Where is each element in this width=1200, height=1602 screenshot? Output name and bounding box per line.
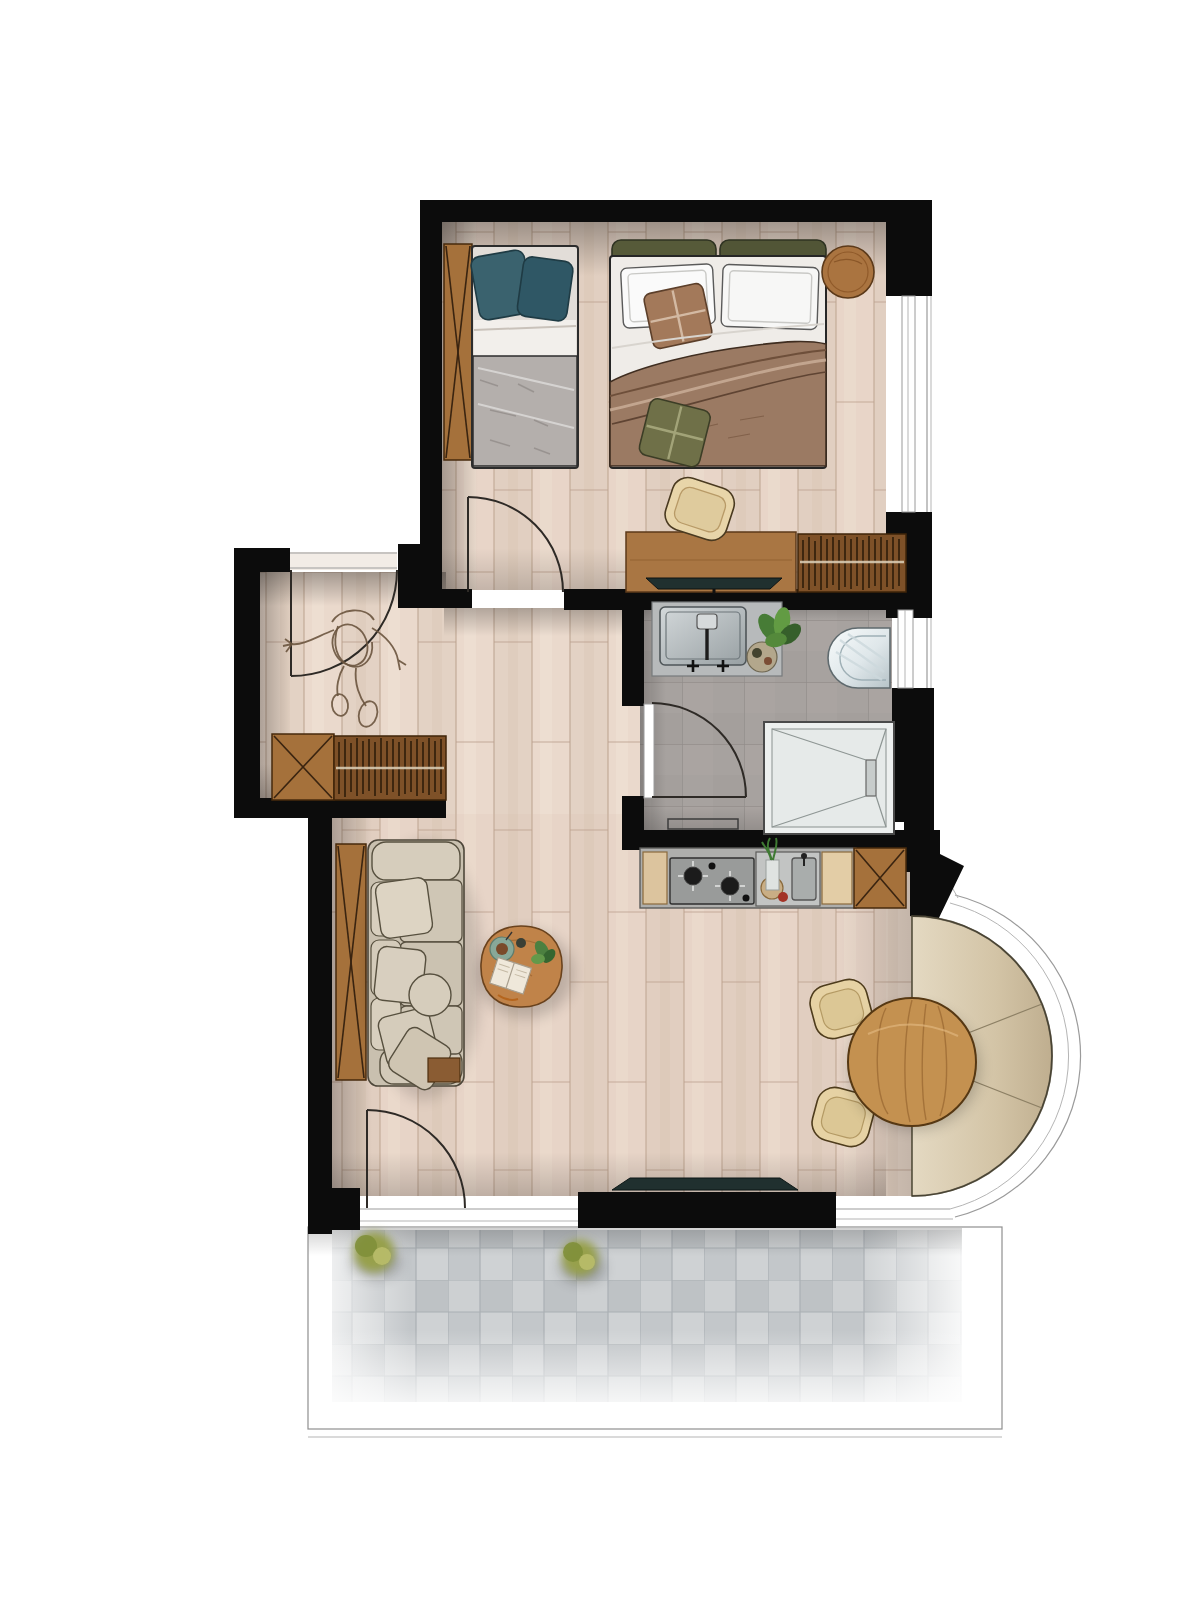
wall-bath-left-top bbox=[622, 592, 644, 706]
wall-right-mid bbox=[892, 688, 934, 822]
entrance-threshold bbox=[290, 552, 397, 570]
wall-entry-left bbox=[234, 548, 260, 802]
double-bed bbox=[610, 240, 826, 468]
brown-accent-pillow bbox=[643, 282, 713, 349]
single-bed bbox=[470, 246, 578, 468]
round-pillow bbox=[409, 974, 451, 1016]
sofa-armrest bbox=[372, 842, 460, 880]
toilet bbox=[828, 628, 890, 688]
floor-plan-drawing bbox=[0, 0, 1200, 1602]
white-pillow bbox=[721, 264, 819, 329]
wall-living-left bbox=[308, 814, 332, 1234]
headboard-panel bbox=[444, 244, 472, 460]
floor-plan-canvas bbox=[0, 0, 1200, 1602]
wall-bedroom-left bbox=[420, 200, 442, 552]
kitchenette bbox=[640, 838, 906, 908]
sofa-wood-accent bbox=[428, 1058, 460, 1082]
cup bbox=[516, 938, 526, 948]
bathroom-door-jamb bbox=[644, 704, 654, 798]
shower-drain bbox=[866, 760, 876, 796]
wall-bay-stub bbox=[910, 830, 964, 924]
walk-in-shower bbox=[764, 722, 894, 834]
sideboard bbox=[272, 734, 446, 800]
lounge-tv bbox=[612, 1178, 798, 1190]
bedroom-tv bbox=[646, 578, 782, 589]
tomato bbox=[778, 892, 788, 902]
vanity-sink bbox=[652, 602, 782, 676]
teal-pillow bbox=[516, 256, 574, 322]
gray-blanket bbox=[473, 356, 577, 466]
wall-living-bottom bbox=[578, 1192, 836, 1228]
cooktop bbox=[670, 858, 754, 904]
desk bbox=[626, 532, 796, 594]
wall-bedroom-top-right bbox=[886, 200, 932, 296]
wood-panel bbox=[336, 844, 366, 1080]
sofa bbox=[366, 840, 482, 1100]
wall-bedroom-bottom-left bbox=[398, 589, 472, 608]
slatted-wardrobe bbox=[798, 534, 906, 592]
wall-bedroom-top bbox=[420, 200, 910, 222]
round-stool bbox=[822, 246, 874, 298]
terrace bbox=[300, 1227, 1002, 1437]
wall-entry-bottom bbox=[234, 798, 446, 818]
x-cabinet bbox=[854, 848, 906, 908]
sofa-pillow bbox=[374, 877, 433, 940]
wall-living-bottom-left bbox=[308, 1188, 360, 1230]
vase bbox=[766, 860, 779, 890]
